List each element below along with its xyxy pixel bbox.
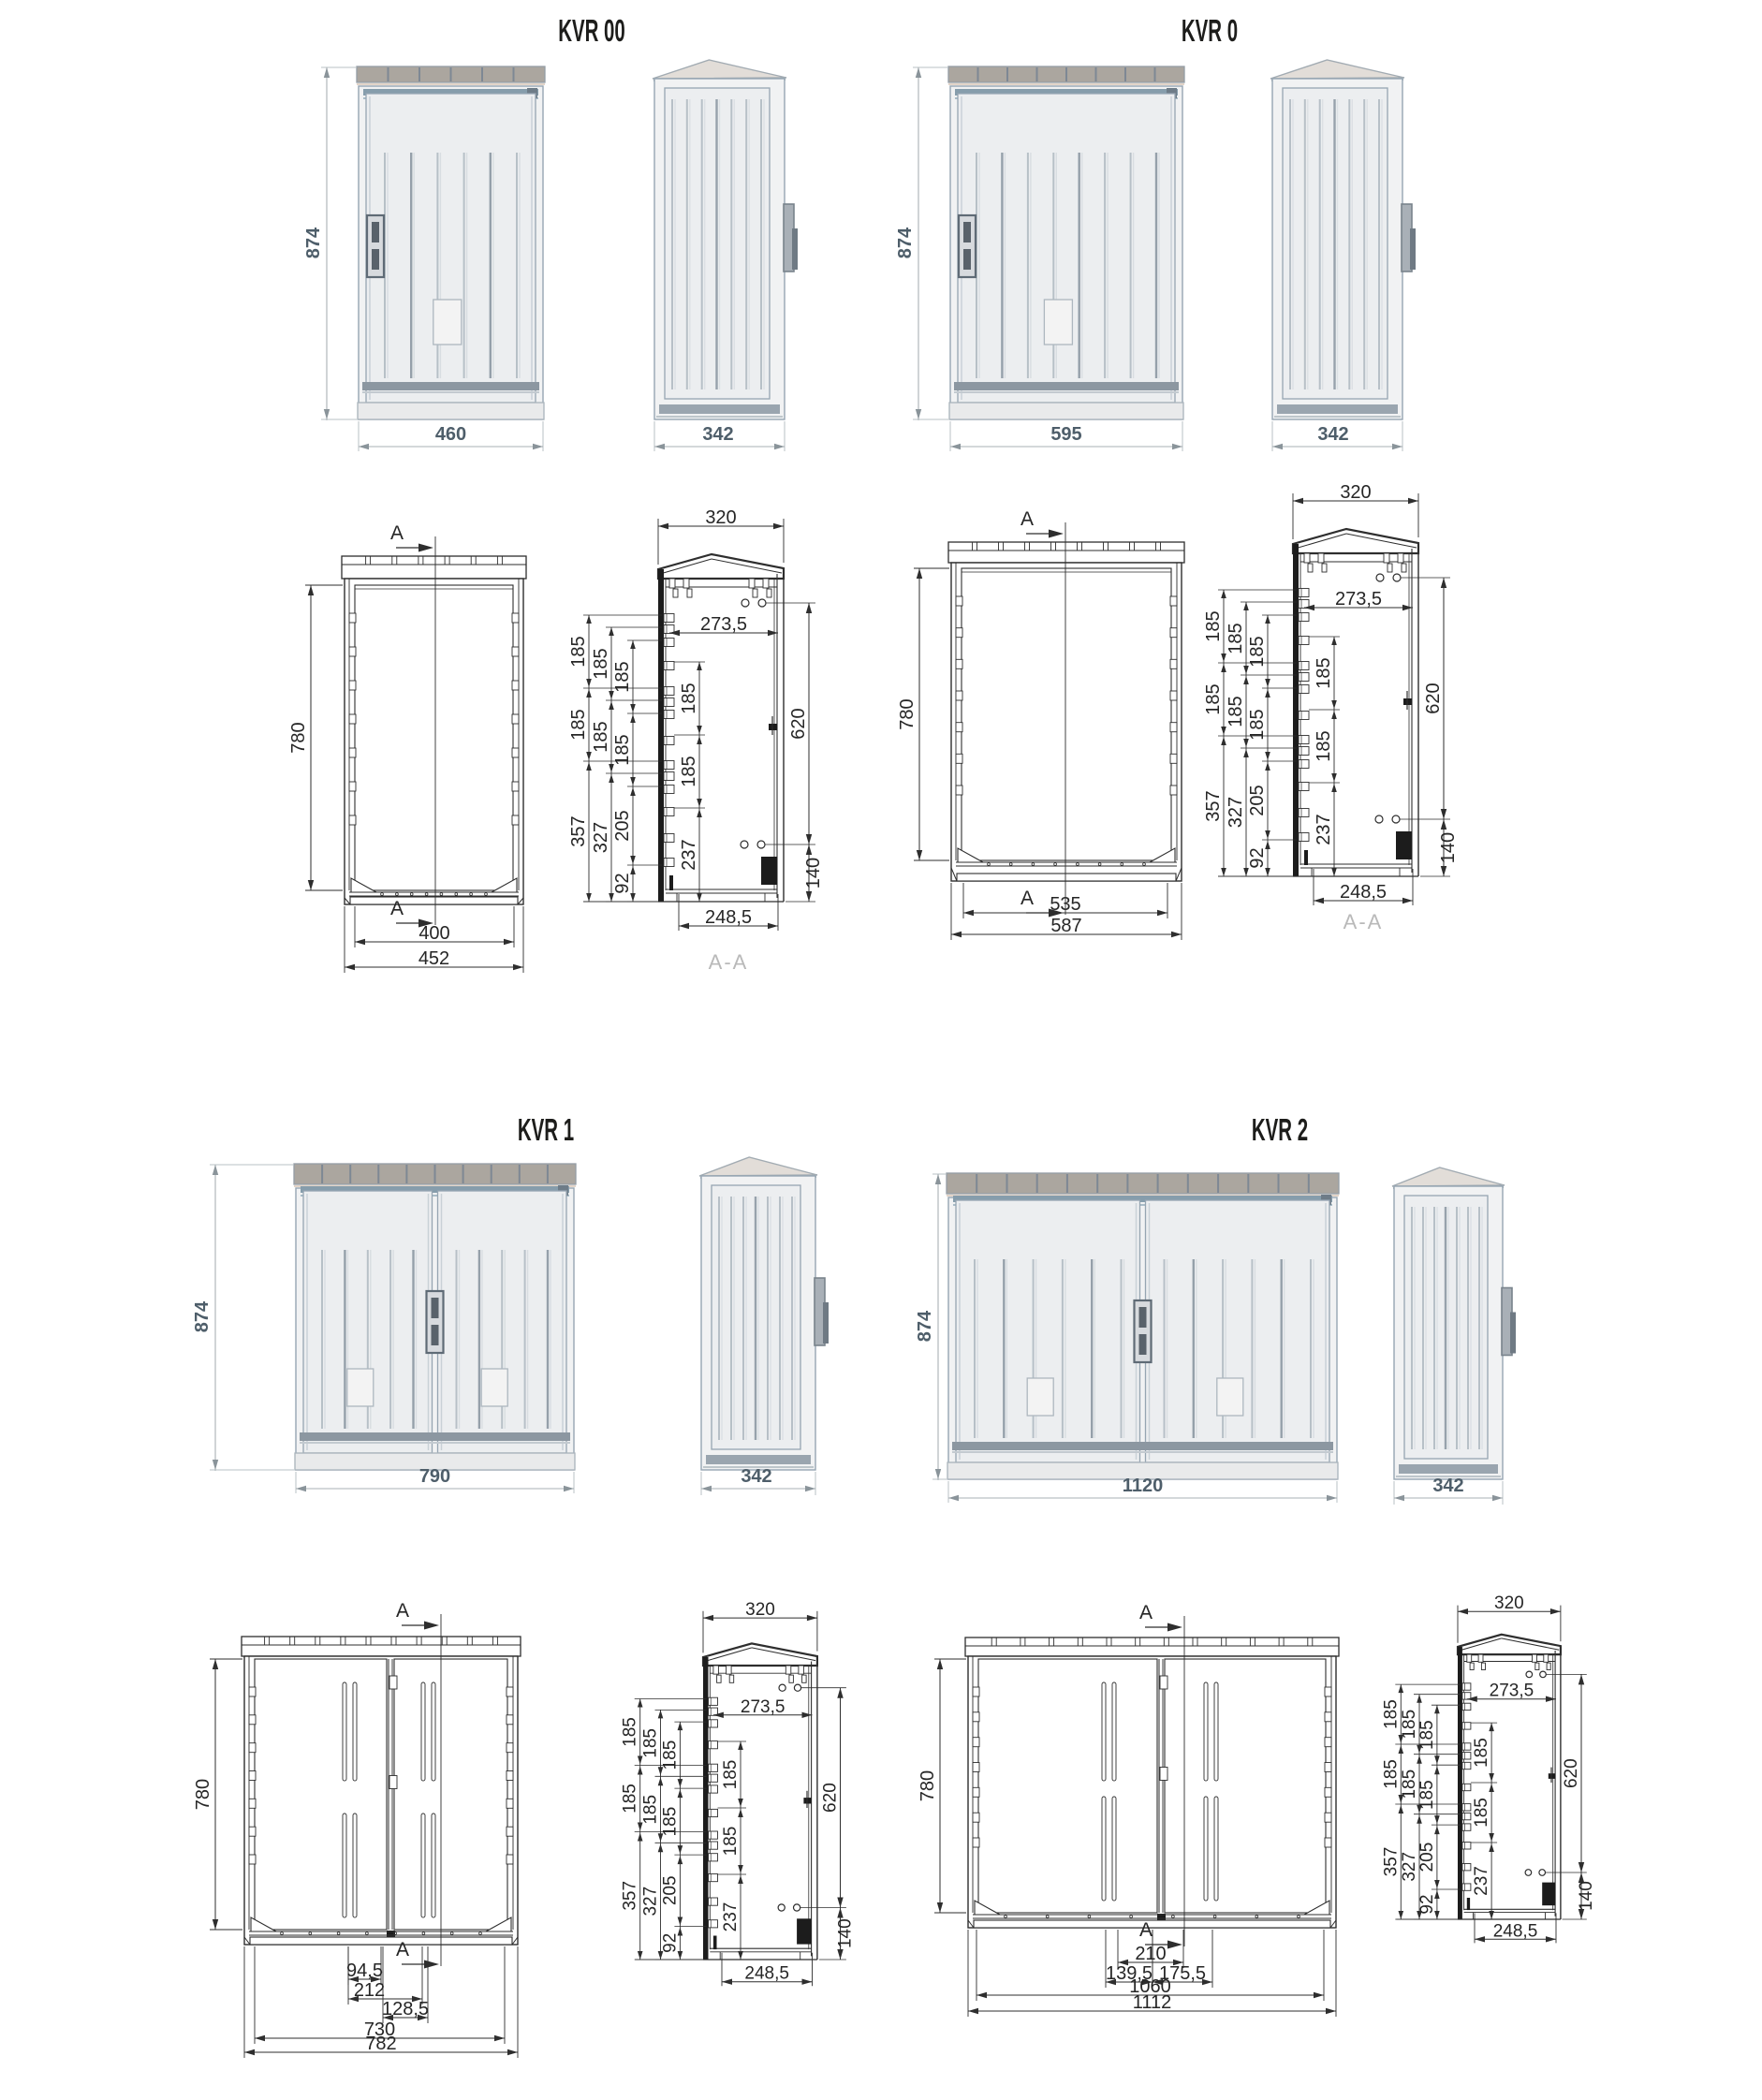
svg-text:185: 185 [1472, 1798, 1491, 1828]
svg-text:452: 452 [418, 948, 449, 969]
svg-text:535: 535 [1050, 894, 1080, 915]
svg-text:A: A [390, 522, 404, 544]
svg-text:A-A: A-A [709, 950, 749, 974]
svg-text:185: 185 [679, 756, 699, 786]
svg-text:248,5: 248,5 [705, 907, 752, 928]
svg-text:185: 185 [679, 683, 699, 713]
svg-text:185: 185 [1381, 1759, 1401, 1789]
svg-text:185: 185 [1314, 730, 1334, 761]
svg-text:A-A: A-A [1344, 910, 1384, 933]
svg-text:780: 780 [897, 698, 918, 729]
svg-text:327: 327 [1400, 1852, 1419, 1882]
svg-text:185: 185 [660, 1807, 680, 1837]
svg-text:185: 185 [591, 648, 611, 679]
svg-text:185: 185 [1314, 657, 1334, 688]
svg-text:185: 185 [568, 636, 589, 667]
svg-text:780: 780 [918, 1770, 938, 1801]
svg-text:185: 185 [1381, 1699, 1401, 1729]
svg-text:KVR 2: KVR 2 [1252, 1112, 1308, 1147]
svg-text:327: 327 [591, 822, 611, 853]
svg-text:874: 874 [303, 227, 324, 258]
svg-text:327: 327 [1226, 797, 1246, 828]
svg-text:185: 185 [641, 1795, 661, 1825]
svg-text:92: 92 [1417, 1894, 1437, 1914]
svg-text:342: 342 [1432, 1476, 1463, 1496]
svg-text:320: 320 [1494, 1593, 1524, 1613]
svg-text:185: 185 [1203, 683, 1224, 714]
svg-text:185: 185 [1417, 1720, 1437, 1750]
svg-text:185: 185 [721, 1760, 741, 1790]
svg-text:185: 185 [591, 721, 611, 752]
svg-text:620: 620 [1562, 1758, 1581, 1788]
svg-text:780: 780 [193, 1779, 213, 1810]
svg-text:205: 205 [1417, 1843, 1437, 1872]
svg-text:185: 185 [568, 709, 589, 740]
svg-text:A: A [1139, 1919, 1153, 1941]
svg-text:185: 185 [1226, 696, 1246, 727]
svg-text:357: 357 [621, 1881, 640, 1911]
svg-text:185: 185 [660, 1740, 680, 1770]
svg-text:A: A [1139, 1602, 1153, 1623]
svg-text:185: 185 [621, 1784, 640, 1814]
svg-text:185: 185 [1226, 623, 1246, 653]
svg-text:92: 92 [660, 1933, 680, 1953]
svg-text:587: 587 [1050, 916, 1081, 936]
svg-text:273,5: 273,5 [1490, 1681, 1534, 1701]
svg-text:A: A [396, 1939, 409, 1960]
svg-text:595: 595 [1050, 424, 1081, 445]
svg-text:357: 357 [1381, 1847, 1401, 1877]
svg-text:KVR 1: KVR 1 [518, 1112, 574, 1147]
svg-text:A: A [1020, 888, 1034, 909]
svg-text:140: 140 [1577, 1881, 1596, 1911]
svg-text:92: 92 [1247, 847, 1268, 868]
svg-text:210: 210 [1135, 1944, 1166, 1964]
svg-text:237: 237 [679, 839, 699, 870]
svg-text:782: 782 [365, 2034, 396, 2054]
svg-text:185: 185 [621, 1717, 640, 1747]
svg-text:342: 342 [1317, 424, 1348, 445]
svg-text:400: 400 [418, 923, 449, 944]
svg-text:874: 874 [192, 1300, 213, 1332]
svg-text:185: 185 [1400, 1710, 1419, 1740]
svg-text:273,5: 273,5 [741, 1697, 786, 1717]
svg-text:140: 140 [836, 1918, 856, 1948]
svg-text:248,5: 248,5 [744, 1964, 789, 1984]
svg-text:357: 357 [568, 815, 589, 846]
svg-text:620: 620 [821, 1783, 841, 1813]
svg-text:205: 205 [612, 810, 633, 841]
svg-text:185: 185 [721, 1827, 741, 1857]
svg-text:342: 342 [741, 1466, 771, 1487]
svg-text:140: 140 [803, 858, 824, 888]
svg-text:620: 620 [788, 708, 809, 739]
svg-text:185: 185 [612, 734, 633, 765]
svg-text:185: 185 [1400, 1770, 1419, 1799]
svg-text:1120: 1120 [1123, 1476, 1163, 1496]
svg-text:460: 460 [435, 424, 466, 445]
svg-text:342: 342 [702, 424, 733, 445]
svg-text:273,5: 273,5 [1335, 589, 1382, 609]
svg-text:327: 327 [641, 1887, 661, 1916]
svg-text:205: 205 [1247, 785, 1268, 815]
svg-text:237: 237 [1314, 814, 1334, 844]
svg-text:KVR 00: KVR 00 [558, 13, 625, 48]
svg-text:237: 237 [1472, 1866, 1491, 1896]
svg-text:185: 185 [1247, 709, 1268, 740]
svg-text:92: 92 [612, 873, 633, 893]
svg-text:320: 320 [745, 1600, 775, 1620]
svg-text:140: 140 [1438, 832, 1459, 863]
svg-text:94,5: 94,5 [346, 1960, 383, 1981]
svg-text:620: 620 [1423, 683, 1444, 713]
svg-text:205: 205 [660, 1875, 680, 1905]
svg-text:128,5: 128,5 [382, 1999, 429, 2019]
svg-text:185: 185 [1417, 1780, 1437, 1810]
svg-text:874: 874 [915, 1310, 935, 1342]
svg-text:237: 237 [721, 1902, 741, 1932]
svg-text:KVR 0: KVR 0 [1182, 13, 1238, 48]
svg-text:248,5: 248,5 [1493, 1921, 1538, 1941]
svg-text:790: 790 [419, 1466, 450, 1487]
svg-text:248,5: 248,5 [1340, 882, 1387, 903]
svg-text:A: A [1020, 508, 1034, 530]
svg-text:212: 212 [354, 1980, 385, 2001]
svg-text:A: A [396, 1600, 409, 1622]
svg-text:874: 874 [895, 227, 916, 258]
svg-text:1112: 1112 [1133, 1992, 1172, 2013]
svg-text:185: 185 [1247, 636, 1268, 667]
svg-text:A: A [390, 898, 404, 919]
svg-text:320: 320 [1340, 482, 1371, 503]
svg-text:185: 185 [612, 661, 633, 692]
svg-text:185: 185 [641, 1728, 661, 1758]
svg-text:273,5: 273,5 [700, 614, 747, 635]
svg-text:780: 780 [288, 722, 309, 753]
svg-text:357: 357 [1203, 790, 1224, 821]
svg-text:320: 320 [705, 507, 736, 528]
svg-text:185: 185 [1472, 1738, 1491, 1768]
svg-text:185: 185 [1203, 610, 1224, 641]
